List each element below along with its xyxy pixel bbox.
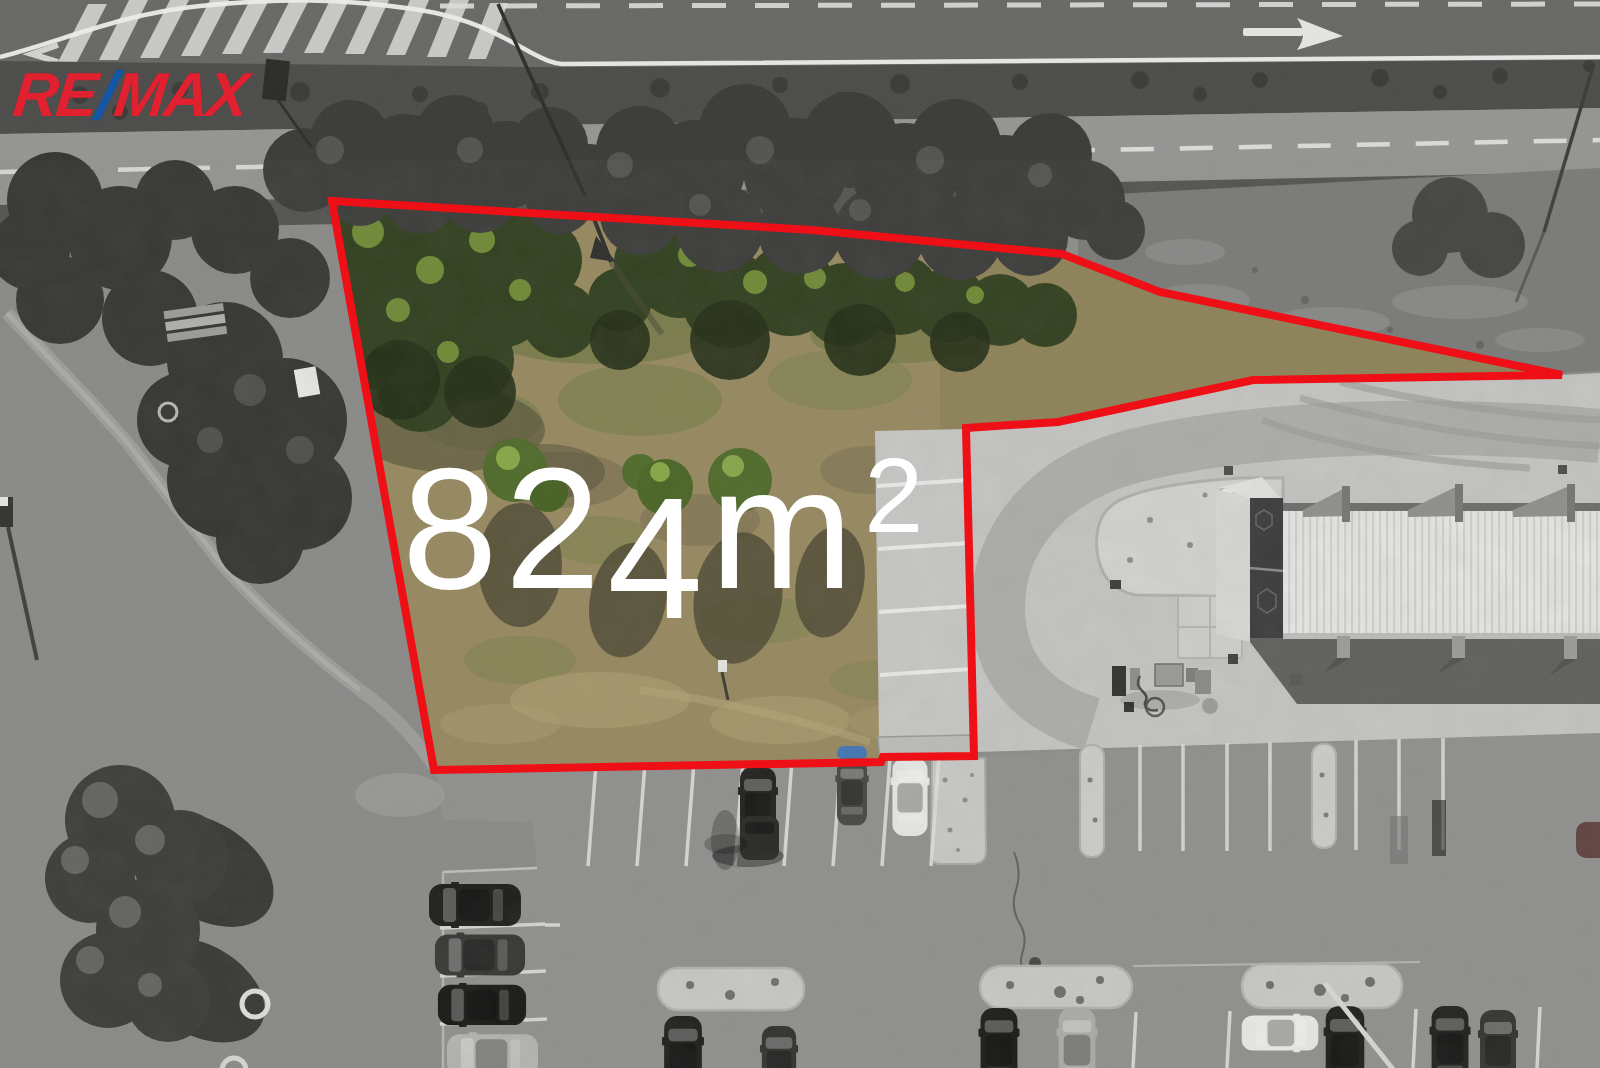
area-unit: m <box>710 432 860 624</box>
area-superscript: 2 <box>864 436 930 554</box>
aerial-listing-photo: 824m2 RE/MAX <box>0 0 1600 1068</box>
remax-logo: RE/MAX <box>10 58 250 126</box>
area-main-digits: 82 <box>402 432 607 624</box>
logo-re: RE <box>10 60 99 129</box>
area-label: 824m2 <box>402 432 930 654</box>
area-digit-descending: 4 <box>607 462 710 654</box>
logo-max: MAX <box>111 60 250 129</box>
aerial-scene: 824m2 <box>0 0 1600 1068</box>
